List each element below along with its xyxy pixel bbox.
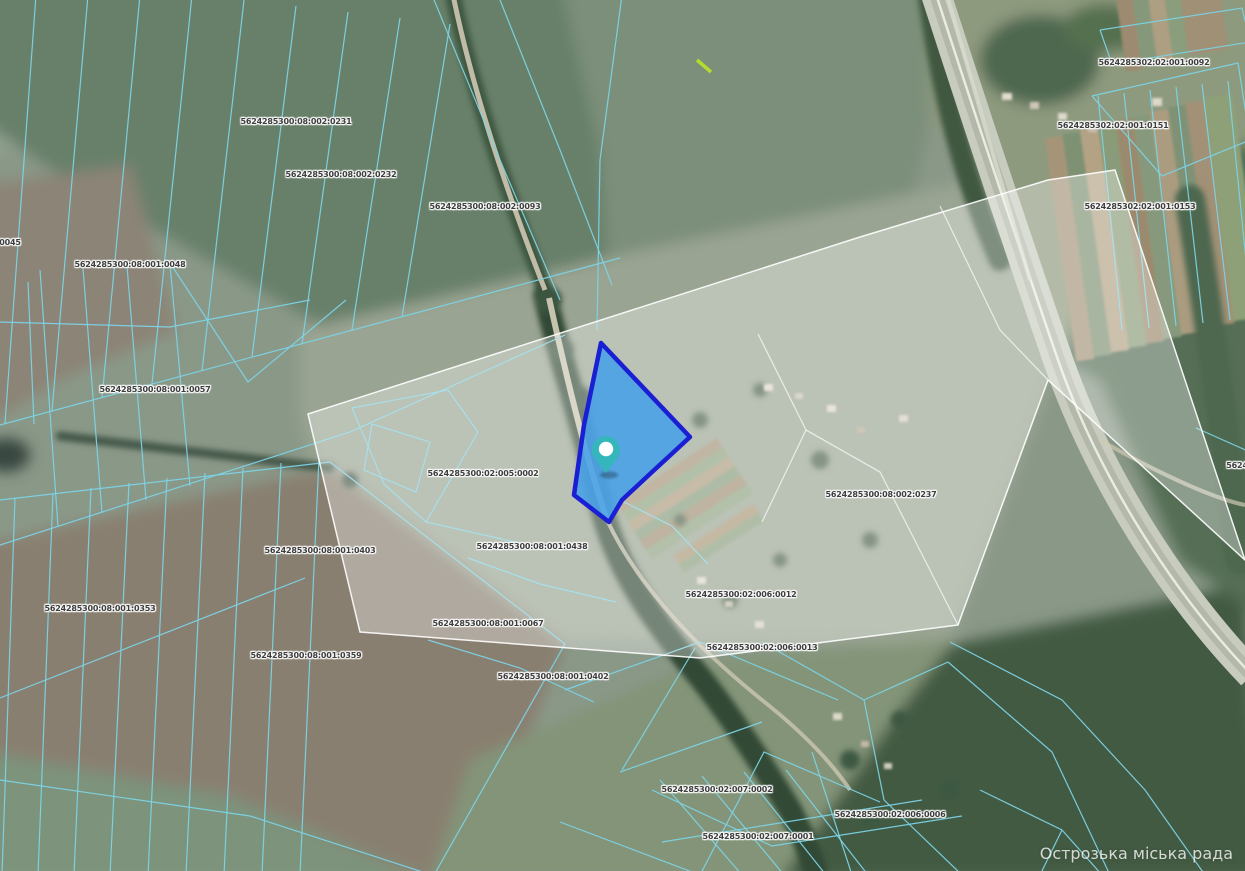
parcel-number-label: 5624285300:08:001:0402 — [498, 673, 609, 681]
parcel-number-label: 5624285300:08:001:0048 — [75, 261, 186, 269]
parcel-number-label: 5624285300:02:006:0006 — [835, 811, 946, 819]
parcel-number-label: 5624285300:02:007:0001 — [703, 833, 814, 841]
parcel-number-label: 5624285300:08:001:0403 — [265, 547, 376, 555]
parcel-number-label: 5624285302:02:001:0092 — [1099, 59, 1210, 67]
parcel-number-label: 5624285300:02:006:0013 — [707, 644, 818, 652]
cadastral-map-viewport[interactable]: 5624285300:08:002:02315624285300:08:002:… — [0, 0, 1245, 871]
parcel-number-label: 5624285300:08:001:0353 — [45, 605, 156, 613]
parcel-number-label: 5624285300:02:007:0002 — [662, 786, 773, 794]
parcel-number-label: 5624285300:02:006:0012 — [686, 591, 797, 599]
parcel-number-label: 5624285300:08:002:0231 — [241, 118, 352, 126]
parcel-number-label: 5624285300:08:001:0359 — [251, 652, 362, 660]
pin-center-dot — [599, 442, 613, 456]
parcel-number-label: 5624285302:02:001:0151 — [1058, 122, 1169, 130]
parcel-number-label: 5624285300:02:005:0002 — [428, 470, 539, 478]
map-canvas[interactable] — [0, 0, 1245, 871]
pin-shadow — [600, 472, 618, 479]
parcel-number-label: 0045 — [0, 239, 21, 247]
parcel-number-label: 5624285300:08:002:0093 — [430, 203, 541, 211]
watermark: Острозька міська рада — [1040, 844, 1233, 863]
parcel-number-label: 5624 — [1226, 462, 1245, 470]
parcel-number-label: 5624285300:08:002:0237 — [826, 491, 937, 499]
parcel-number-label: 5624285300:08:002:0232 — [286, 171, 397, 179]
parcel-number-label: 5624285302:02:001:0153 — [1085, 203, 1196, 211]
parcel-number-label: 5624285300:08:001:0438 — [477, 543, 588, 551]
parcel-number-label: 5624285300:08:001:0067 — [433, 620, 544, 628]
parcel-number-label: 5624285300:08:001:0057 — [100, 386, 211, 394]
